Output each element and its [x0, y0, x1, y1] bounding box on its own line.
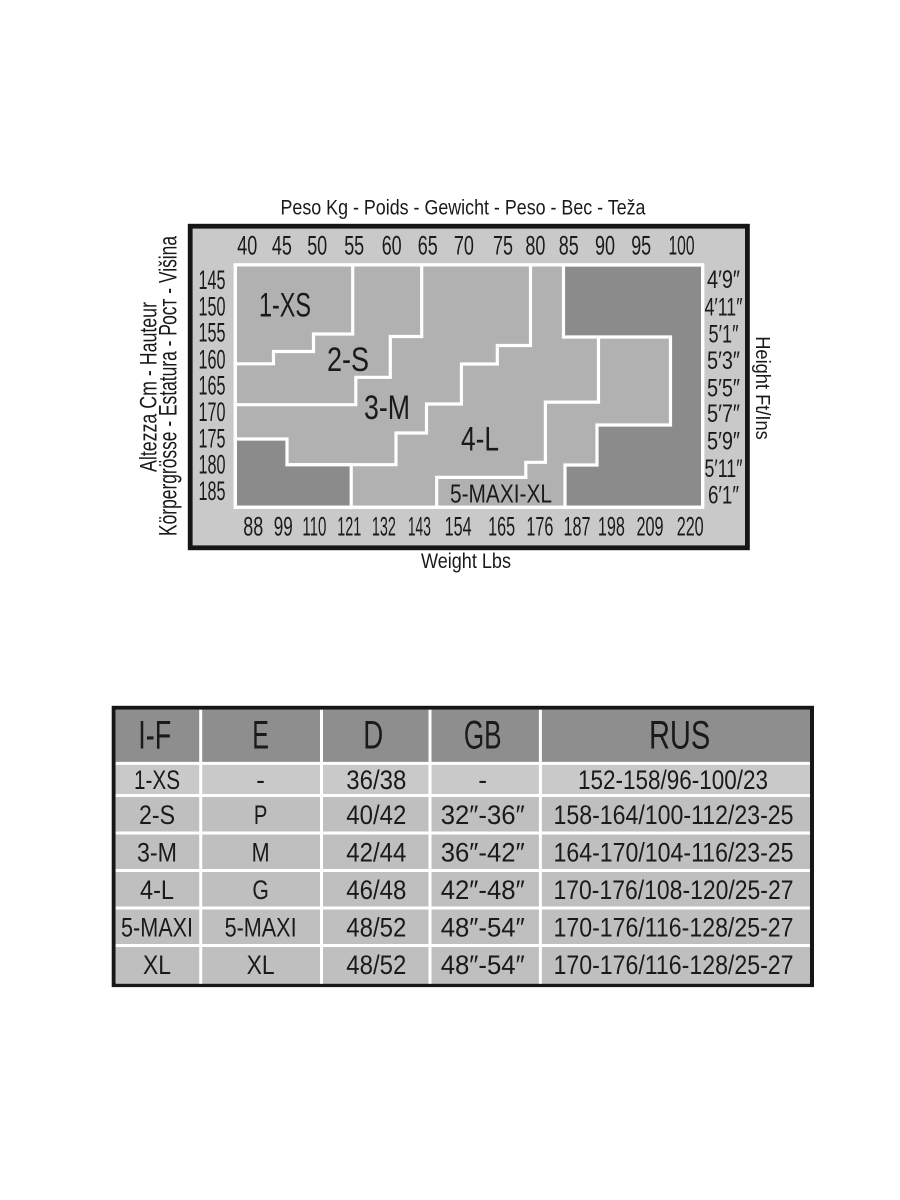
svg-text:6′1″: 6′1″	[708, 482, 739, 510]
svg-text:42/44: 42/44	[346, 837, 406, 867]
svg-text:36″-42″: 36″-42″	[441, 837, 525, 867]
svg-text:5′3″: 5′3″	[707, 347, 740, 375]
svg-text:Peso Kg - Poids - Gewicht - Pe: Peso Kg - Poids - Gewicht - Peso - Bec -…	[281, 196, 646, 220]
svg-text:121: 121	[337, 512, 361, 542]
svg-text:170-176/116-128/25-27: 170-176/116-128/25-27	[554, 950, 794, 980]
svg-text:D: D	[363, 714, 383, 758]
svg-text:Height Ft/Ins: Height Ft/Ins	[751, 336, 773, 440]
svg-text:110: 110	[302, 512, 326, 542]
svg-text:1-XS: 1-XS	[134, 765, 180, 795]
svg-text:48/52: 48/52	[346, 950, 406, 980]
svg-text:80: 80	[525, 231, 545, 261]
svg-text:143: 143	[408, 512, 431, 542]
svg-text:100: 100	[669, 231, 695, 261]
svg-text:3-M: 3-M	[364, 389, 410, 427]
svg-text:45: 45	[272, 231, 292, 261]
svg-text:4-L: 4-L	[140, 875, 174, 905]
svg-text:4′9″: 4′9″	[707, 266, 740, 294]
svg-text:46/48: 46/48	[346, 875, 406, 905]
svg-text:3-M: 3-M	[137, 837, 177, 867]
svg-text:99: 99	[274, 512, 293, 542]
svg-text:164-170/104-116/23-25: 164-170/104-116/23-25	[554, 837, 794, 867]
svg-text:165: 165	[488, 512, 515, 542]
svg-text:XL: XL	[247, 950, 275, 980]
svg-text:P: P	[254, 800, 268, 830]
svg-text:152-158/96-100/23: 152-158/96-100/23	[578, 765, 768, 795]
svg-text:5′5″: 5′5″	[707, 374, 740, 402]
svg-text:55: 55	[344, 231, 364, 261]
svg-text:5′1″: 5′1″	[709, 321, 739, 349]
svg-text:145: 145	[199, 265, 226, 295]
svg-text:GB: GB	[464, 714, 502, 758]
svg-text:Weight Lbs: Weight Lbs	[421, 550, 511, 573]
svg-text:220: 220	[677, 512, 704, 542]
svg-text:5-MAXI: 5-MAXI	[225, 912, 297, 942]
svg-text:2-S: 2-S	[327, 341, 369, 379]
svg-text:5′7″: 5′7″	[707, 400, 740, 428]
svg-text:-: -	[256, 765, 265, 795]
svg-text:5′9″: 5′9″	[707, 428, 740, 456]
svg-text:154: 154	[445, 512, 472, 542]
svg-text:48″-54″: 48″-54″	[441, 950, 525, 980]
svg-text:170-176/116-128/25-27: 170-176/116-128/25-27	[554, 912, 794, 942]
svg-text:E: E	[252, 714, 269, 758]
svg-text:G: G	[252, 875, 269, 905]
svg-text:5-MAXI: 5-MAXI	[121, 912, 193, 942]
svg-text:50: 50	[307, 231, 327, 261]
svg-text:85: 85	[559, 231, 579, 261]
svg-text:40: 40	[237, 231, 257, 261]
svg-text:40/42: 40/42	[346, 800, 406, 830]
svg-text:176: 176	[526, 512, 553, 542]
svg-text:70: 70	[454, 231, 474, 261]
svg-text:158-164/100-112/23-25: 158-164/100-112/23-25	[554, 800, 794, 830]
svg-text:185: 185	[199, 476, 226, 506]
svg-text:2-S: 2-S	[139, 800, 175, 830]
svg-text:36/38: 36/38	[346, 765, 406, 795]
svg-text:XL: XL	[143, 950, 171, 980]
svg-text:95: 95	[631, 231, 651, 261]
svg-text:Körpergrösse - Estatura - Рост: Körpergrösse - Estatura - Рост - Višina	[155, 236, 183, 536]
svg-text:I-F: I-F	[138, 714, 171, 758]
svg-text:90: 90	[595, 231, 615, 261]
svg-text:RUS: RUS	[649, 714, 710, 758]
svg-text:42″-48″: 42″-48″	[441, 875, 525, 905]
svg-text:4′11″: 4′11″	[705, 294, 743, 322]
svg-text:1-XS: 1-XS	[259, 287, 311, 325]
svg-text:65: 65	[418, 231, 438, 261]
svg-text:60: 60	[382, 231, 402, 261]
svg-text:-: -	[478, 765, 487, 795]
svg-text:187: 187	[564, 512, 591, 542]
svg-text:165: 165	[199, 370, 226, 400]
svg-text:88: 88	[243, 512, 263, 542]
svg-text:5′11″: 5′11″	[705, 455, 743, 483]
svg-text:198: 198	[598, 512, 625, 542]
svg-text:5-MAXI-XL: 5-MAXI-XL	[450, 479, 552, 509]
svg-text:75: 75	[493, 231, 513, 261]
svg-text:48″-54″: 48″-54″	[441, 912, 525, 942]
svg-text:155: 155	[199, 318, 226, 348]
svg-text:209: 209	[637, 512, 664, 542]
svg-text:132: 132	[372, 512, 396, 542]
svg-text:4-L: 4-L	[461, 421, 499, 459]
svg-text:170-176/108-120/25-27: 170-176/108-120/25-27	[554, 875, 794, 905]
svg-text:48/52: 48/52	[346, 912, 406, 942]
svg-text:32″-36″: 32″-36″	[441, 800, 525, 830]
svg-text:M: M	[252, 837, 270, 867]
